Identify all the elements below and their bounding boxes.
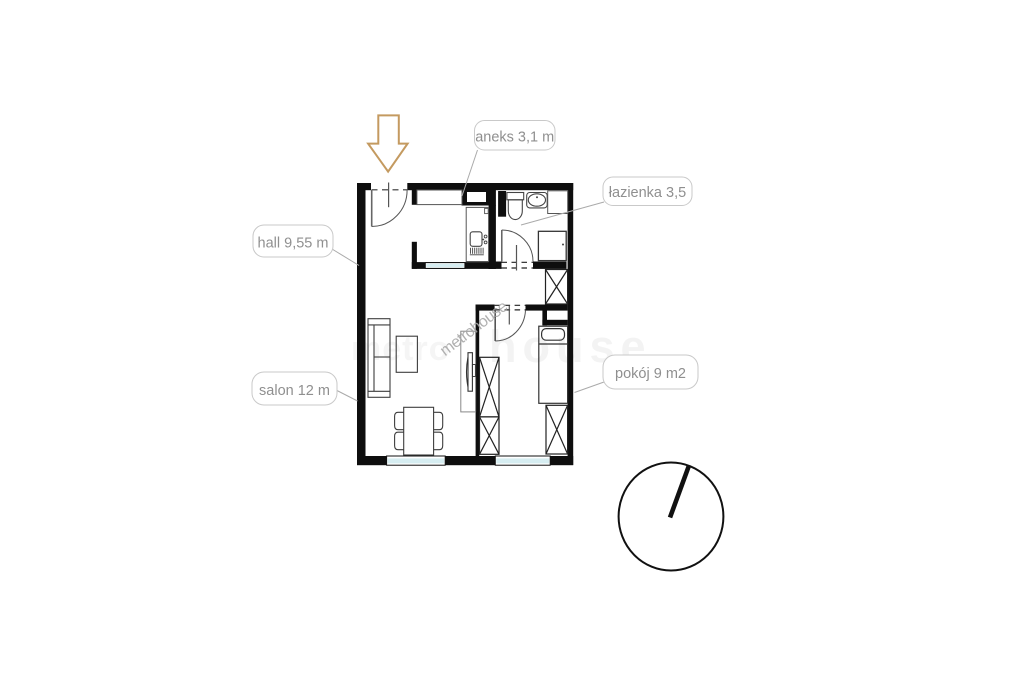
svg-text:aneks 3,1 m: aneks 3,1 m	[475, 130, 554, 146]
svg-text:salon 12 m: salon 12 m	[259, 383, 330, 399]
svg-text:łazienka 3,5: łazienka 3,5	[609, 185, 686, 201]
svg-text:hall 9,55 m: hall 9,55 m	[258, 236, 329, 252]
svg-text:pokój 9 m2: pokój 9 m2	[615, 366, 686, 382]
